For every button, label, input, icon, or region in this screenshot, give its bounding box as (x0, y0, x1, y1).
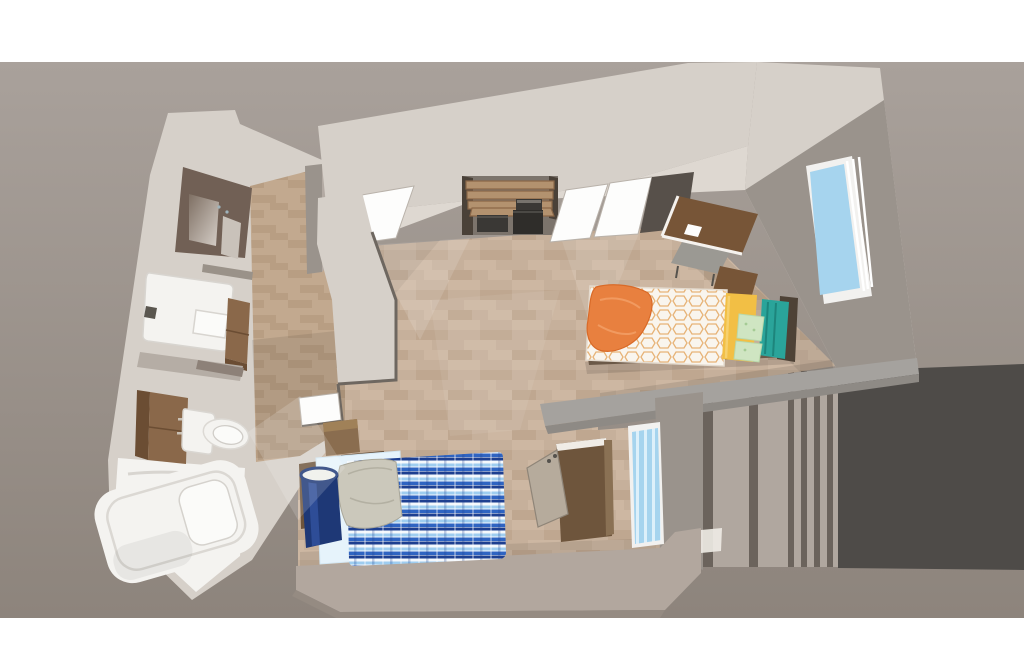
floorplan-render (0, 0, 1024, 662)
pillow-dot (745, 323, 748, 326)
microwave-screen (517, 200, 541, 203)
sink-counter (143, 273, 233, 351)
green-pillow-2 (734, 341, 762, 362)
wall-cabinet-side (135, 390, 150, 460)
gray-blanket (338, 459, 402, 528)
dark-stair-void (838, 364, 1024, 570)
pillow-dot (744, 349, 747, 352)
pillow-dot (753, 329, 756, 332)
side-cabinet (221, 216, 241, 259)
mirror-glass (189, 194, 219, 246)
sink-bowl (193, 310, 228, 338)
chair-knob (553, 454, 557, 458)
window-glass (632, 428, 661, 544)
vanity-light-dot (225, 210, 228, 213)
faucet (144, 306, 157, 319)
corner-sliver (701, 528, 722, 553)
vanity-light-dot (217, 205, 220, 208)
mini-fridge (513, 210, 543, 234)
window-bottom (628, 422, 664, 548)
chair-knob (547, 459, 551, 463)
kitchenette-alcove (462, 176, 558, 235)
green-pillow-1 (737, 314, 764, 341)
